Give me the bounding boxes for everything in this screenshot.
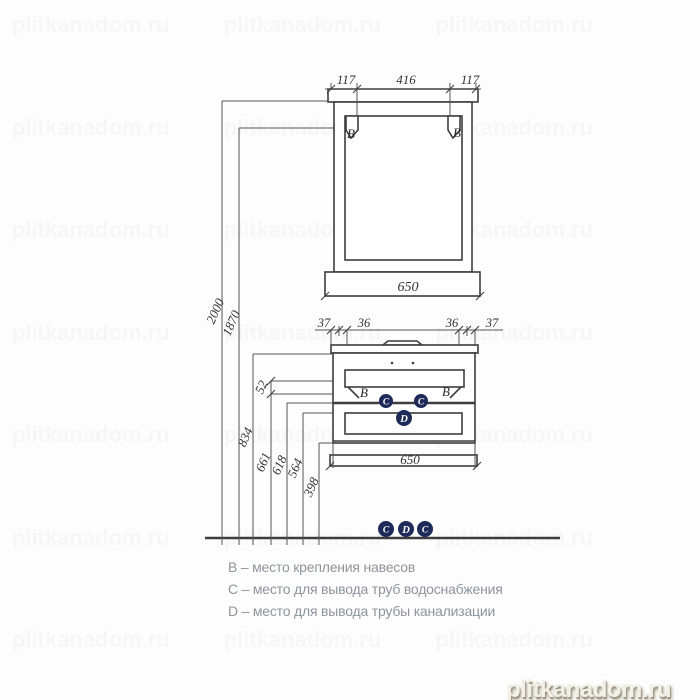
vanity-dim-37-right: 37 — [485, 316, 499, 330]
floor-marker-letter: C — [422, 526, 429, 536]
supply-marker-left-letter: C — [383, 398, 390, 408]
faucet-hole-dot — [412, 362, 415, 365]
mirror-cornice — [328, 89, 478, 102]
mirror-width-label: 650 — [398, 280, 419, 295]
floor-marker-letter: C — [383, 526, 390, 536]
mirror-dim-117-right: 117 — [461, 72, 480, 87]
legend-item-d: D – место для вывода трубы канализации — [228, 603, 495, 619]
mirror-bracket-label-right: B — [453, 125, 461, 140]
mirror-dim-416: 416 — [396, 72, 416, 87]
drain-marker-letter: D — [399, 414, 408, 425]
vanity-bracket-label-right: B — [442, 384, 450, 399]
vanity-bracket-label-left: B — [360, 385, 368, 400]
vanity-cabinet — [333, 353, 475, 443]
mirror-bracket-label-left: B — [347, 126, 355, 141]
mirror-drawing: B B 650 117 416 117 — [321, 72, 484, 300]
faucet-hole-dot — [391, 362, 394, 365]
vanity-dim-37-left: 37 — [317, 316, 331, 330]
vanity-dim-36-left: 36 — [357, 316, 371, 330]
legend-item-b: B – место крепления навесов — [228, 559, 415, 575]
floor-pipe-markers: C D C — [378, 521, 433, 537]
height-label-52: 52 — [252, 378, 271, 396]
vanity-dim-36-right: 36 — [445, 316, 459, 330]
vanity-drawing: 37 36 36 37 B B C C D — [315, 316, 503, 470]
watermark: plitkanadom.ru — [506, 676, 671, 700]
mirror-dim-117-left: 117 — [337, 72, 356, 87]
technical-drawing-page: plitkanadom.ruplitkanadom.ruplitkanadom.… — [0, 0, 700, 700]
floor-marker-letter: D — [401, 525, 410, 536]
vanity-width-label: 650 — [400, 452, 420, 467]
vanity-countertop — [331, 345, 478, 353]
supply-marker-right-letter: C — [418, 398, 425, 408]
legend-item-c: C – место для вывода труб водоснабжения — [228, 581, 503, 597]
